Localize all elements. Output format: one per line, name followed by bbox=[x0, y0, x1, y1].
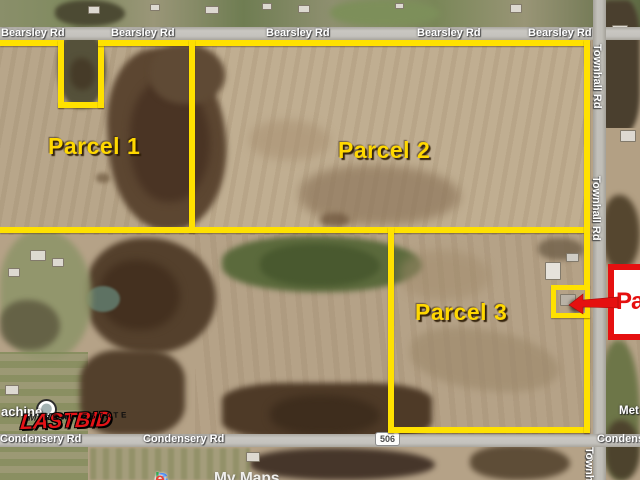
bearsley-road-label: Bearsley Rd bbox=[528, 27, 592, 40]
building bbox=[262, 3, 272, 10]
parcel-3-label: Parcel 3 bbox=[415, 299, 507, 326]
woods-patch bbox=[150, 44, 225, 104]
bearsley-road-label: Bearsley Rd bbox=[417, 27, 481, 40]
building bbox=[88, 6, 100, 14]
building bbox=[52, 258, 64, 267]
tree-dot bbox=[96, 173, 110, 183]
parcel3-boundary-left bbox=[388, 227, 394, 433]
barn-building bbox=[545, 262, 561, 280]
lawn-patch bbox=[330, 0, 440, 26]
building bbox=[150, 4, 160, 11]
parcel-boundary-top-left bbox=[0, 40, 64, 46]
parcel-1-label: Parcel 1 bbox=[48, 133, 140, 160]
building bbox=[510, 4, 522, 13]
tree-patch bbox=[70, 58, 95, 90]
building bbox=[205, 6, 219, 14]
map-canvas[interactable]: Bearsley Rd Bearsley Rd Bearsley Rd Bear… bbox=[0, 0, 640, 480]
parcel3-boundary-bottom bbox=[388, 427, 590, 433]
parcel-2-label: Parcel 2 bbox=[338, 137, 430, 164]
condensery-road-label: Condensery Rd bbox=[143, 433, 224, 446]
bearsley-road-label: Bearsley Rd bbox=[1, 27, 65, 40]
parcel-boundary-divider-1-2 bbox=[189, 40, 195, 233]
parcel-boundary-notch-right bbox=[98, 40, 104, 108]
parcel-boundary-notch-left bbox=[58, 40, 64, 108]
building bbox=[246, 452, 260, 462]
bearsley-road-label: Bearsley Rd bbox=[111, 27, 175, 40]
condensery-road bbox=[0, 434, 640, 447]
woods-patch bbox=[270, 395, 380, 435]
townhall-road-label: Townhall Rd bbox=[589, 176, 602, 241]
parcel-boundary-right-lower bbox=[584, 316, 590, 433]
building bbox=[8, 268, 20, 277]
building bbox=[620, 130, 636, 142]
condensery-road-label: Condensery Rd bbox=[0, 433, 81, 446]
soil-smudge bbox=[400, 250, 490, 300]
green-clump bbox=[260, 244, 380, 286]
route-506-shield: 506 bbox=[375, 432, 400, 446]
townhall-road-label: Townhall Rd bbox=[582, 447, 595, 480]
place-label-right-edge: Met bbox=[619, 405, 639, 417]
parcel-boundary-middle bbox=[0, 227, 590, 233]
parcel-boundary-top bbox=[98, 40, 590, 46]
tree-dot bbox=[320, 213, 350, 227]
building bbox=[298, 5, 310, 13]
building bbox=[395, 3, 404, 9]
barn-building bbox=[566, 253, 579, 262]
building bbox=[5, 385, 19, 395]
tree-patch bbox=[0, 300, 60, 350]
lastbid-watermark: MIEDEMA'S LASTBID REAL ESTATE bbox=[20, 409, 140, 413]
bearsley-road-label: Bearsley Rd bbox=[266, 27, 330, 40]
condensery-road-label: Condensery Rd bbox=[597, 433, 640, 446]
tree-patch bbox=[605, 420, 640, 480]
tree-patch bbox=[602, 195, 640, 270]
my-maps-label: My Maps bbox=[214, 470, 279, 480]
townhall-road-label: Townhall Rd bbox=[590, 44, 603, 109]
callout-arrow-icon bbox=[564, 290, 622, 318]
parcel-boundary-right-upper bbox=[584, 40, 590, 288]
google-letter: e bbox=[155, 469, 165, 480]
woods-patch bbox=[470, 445, 570, 480]
soil-smudge bbox=[250, 120, 330, 160]
building bbox=[30, 250, 46, 261]
